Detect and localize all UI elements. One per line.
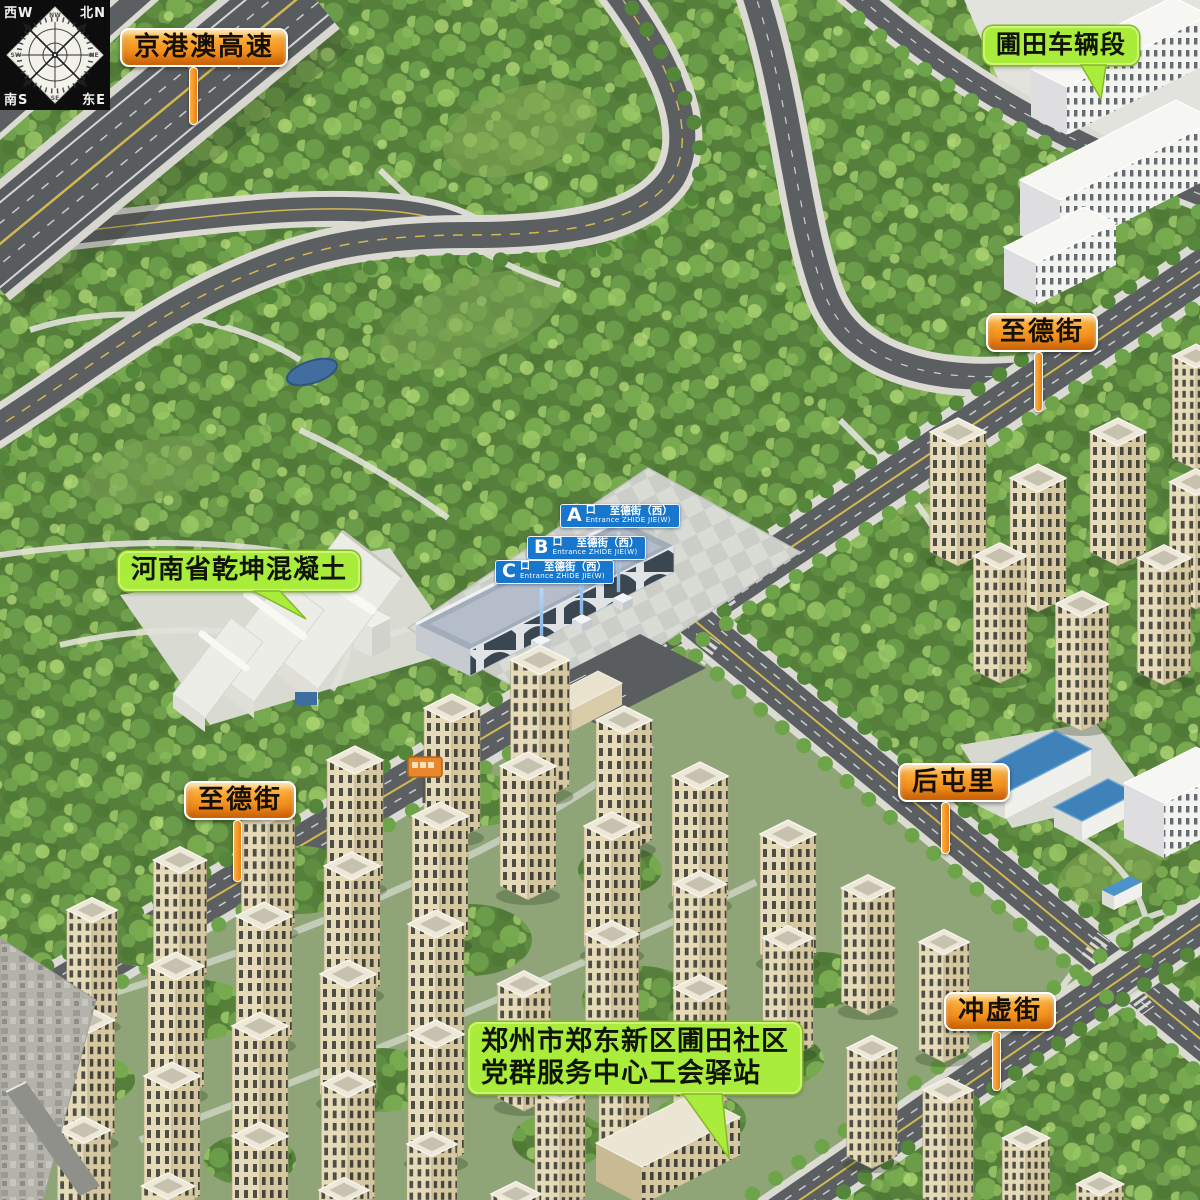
road-pin-label: 至德街 <box>986 313 1098 352</box>
place-callout-depot: 圃田车辆段 <box>983 26 1139 65</box>
road-pin-expressway: 京港澳高速 <box>120 28 288 67</box>
place-callout-concrete: 河南省乾坤混凝土 <box>118 551 360 591</box>
road-pin-label: 京港澳高速 <box>120 28 288 67</box>
compass-north-label: 北N <box>80 2 106 21</box>
entrance-pointer-line <box>540 588 543 636</box>
road-pin-zhide-left: 至德街 <box>184 781 296 820</box>
entrance-label-a: A 口 至德街（西） Entrance ZHIDE JIE(W) <box>560 504 680 528</box>
entrance-subtitle: Entrance ZHIDE JIE(W) <box>552 549 639 556</box>
road-pin-label: 后屯里 <box>898 763 1010 802</box>
entrance-letter: A <box>567 506 582 525</box>
place-callout-text-line1: 郑州市郑东新区圃田社区 <box>481 1026 789 1058</box>
road-pin-label: 冲虚街 <box>944 992 1056 1031</box>
entrance-subtitle: Entrance ZHIDE JIE(W) <box>520 573 607 580</box>
compass-west-label: 西W <box>4 2 33 21</box>
callout-tail <box>250 591 310 623</box>
callout-tail <box>680 1094 744 1162</box>
compass-south-label: 南S <box>4 89 28 108</box>
compass-east-label: 东E <box>82 89 106 108</box>
entrance-label-c: C 口 至德街（西） Entrance ZHIDE JIE(W) <box>495 560 614 584</box>
entrance-label-b: B 口 至德街（西） Entrance ZHIDE JIE(W) <box>527 536 646 560</box>
pin-stem <box>1034 352 1043 412</box>
pin-stem <box>233 820 242 882</box>
place-callout-text: 圃田车辆段 <box>983 26 1139 65</box>
road-pin-label: 至德街 <box>184 781 296 820</box>
road-pin-houtunli: 后屯里 <box>898 763 1010 802</box>
compass-frame: 西W 北N 南S 东E <box>0 0 110 110</box>
entrance-letter: C <box>502 562 516 581</box>
road-pin-chongxu: 冲虚街 <box>944 992 1056 1031</box>
pin-stem <box>189 67 198 125</box>
map-viewport: NW NE SE SW 西W 北N 南S 东E 京港澳高速 至德街 至德街 后屯… <box>0 0 1200 1200</box>
entrance-letter: B <box>534 538 548 557</box>
pin-stem <box>992 1031 1001 1091</box>
callout-tail <box>1078 65 1112 101</box>
pin-stem <box>941 802 950 854</box>
place-callout-text-line2: 党群服务中心工会驿站 <box>481 1058 789 1090</box>
entrance-subtitle: Entrance ZHIDE JIE(W) <box>586 517 673 524</box>
place-callout-union-station: 郑州市郑东新区圃田社区 党群服务中心工会驿站 <box>468 1022 802 1094</box>
place-callout-text: 河南省乾坤混凝土 <box>118 551 360 591</box>
road-pin-zhide-right: 至德街 <box>986 313 1098 352</box>
plant-blue-shed <box>295 692 317 705</box>
